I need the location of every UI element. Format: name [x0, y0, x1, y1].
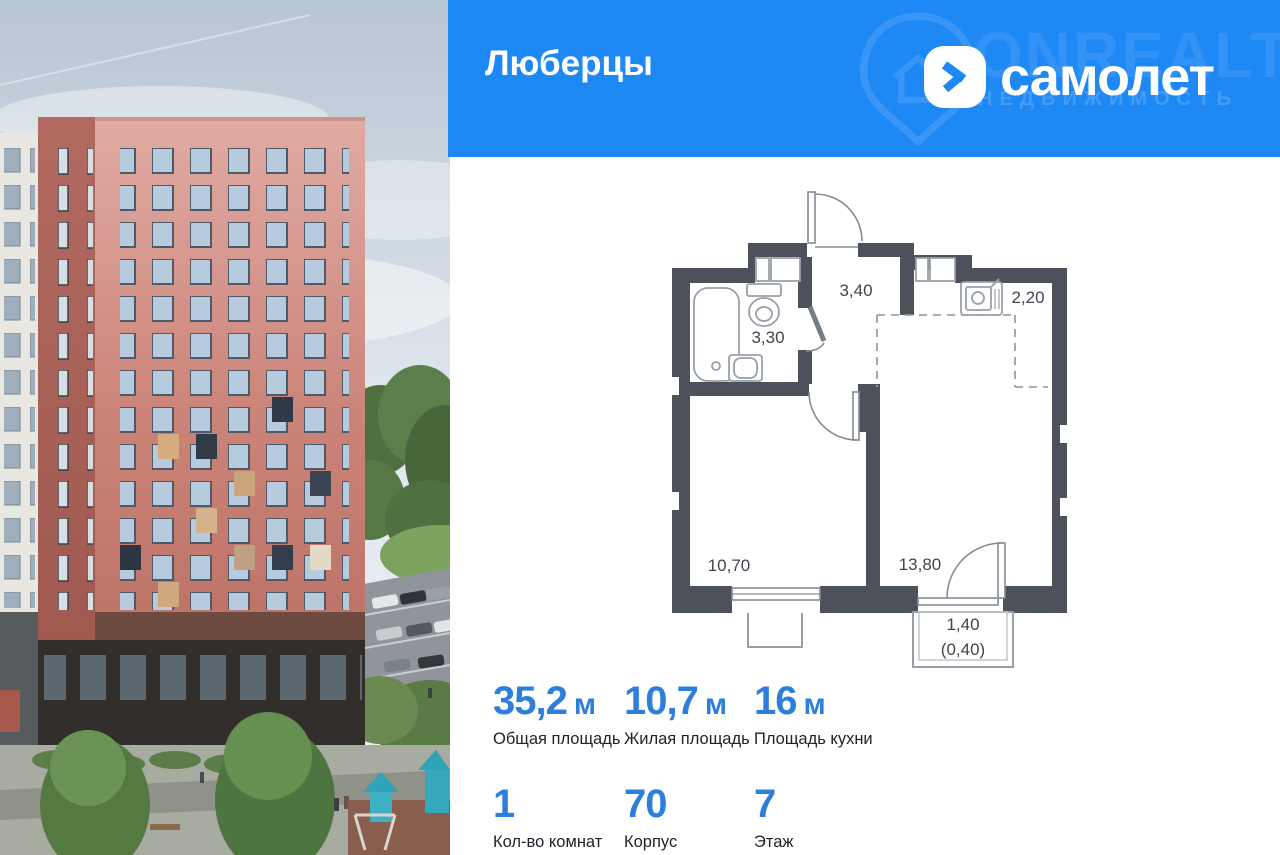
- washer-bathroom-icon: [756, 258, 800, 281]
- floor-plan: 3,40 3,30 2,20 10,70 13,80 1,40 (0,40): [650, 180, 1090, 680]
- washbasin-icon: [729, 355, 762, 381]
- main-building: [38, 117, 365, 745]
- listing-card: Люберцы ONREALT НЕДВИЖИМОСТЬ самолет: [0, 0, 1280, 855]
- room-label-kitchen-living: 13,80: [899, 555, 942, 574]
- building-photo-scene: [0, 0, 450, 855]
- room-label-balcony: 1,40: [946, 615, 979, 634]
- stat-floor: 7 Этаж: [754, 784, 924, 852]
- brand-name: самолет: [1000, 44, 1214, 110]
- stat-living-area-unit: м: [705, 688, 726, 721]
- room-label-living-room: 10,70: [708, 556, 751, 575]
- washer-kitchen-icon: [916, 258, 955, 281]
- kitchen-sink-icon: [961, 279, 1002, 315]
- room-label-hallway: 3,40: [839, 281, 872, 300]
- room-label-bathroom: 3,30: [751, 328, 784, 347]
- room-label-balcony-reduced: (0,40): [941, 640, 985, 659]
- samolet-logo-icon: [924, 46, 986, 108]
- stat-floor-label: Этаж: [754, 833, 924, 852]
- stat-kitchen-area-unit: м: [804, 688, 825, 721]
- room-label-kitchen-niche: 2,20: [1011, 288, 1044, 307]
- stat-floor-value: 7: [754, 784, 924, 824]
- stat-kitchen-area: 16м Площадь кухни: [754, 681, 924, 749]
- header-banner: Люберцы ONREALT НЕДВИЖИМОСТЬ самолет: [448, 0, 1280, 157]
- kitchen-zone-dashed-line: [877, 315, 1048, 387]
- toilet-icon: [747, 284, 781, 326]
- stat-kitchen-area-value: 16м: [754, 681, 924, 721]
- samolet-logo: самолет: [924, 44, 1214, 110]
- project-title: Люберцы: [485, 44, 653, 84]
- stat-kitchen-area-label: Площадь кухни: [754, 730, 924, 749]
- building-photo: [0, 0, 450, 855]
- white-building: [0, 133, 38, 752]
- stat-total-area-unit: м: [574, 688, 595, 721]
